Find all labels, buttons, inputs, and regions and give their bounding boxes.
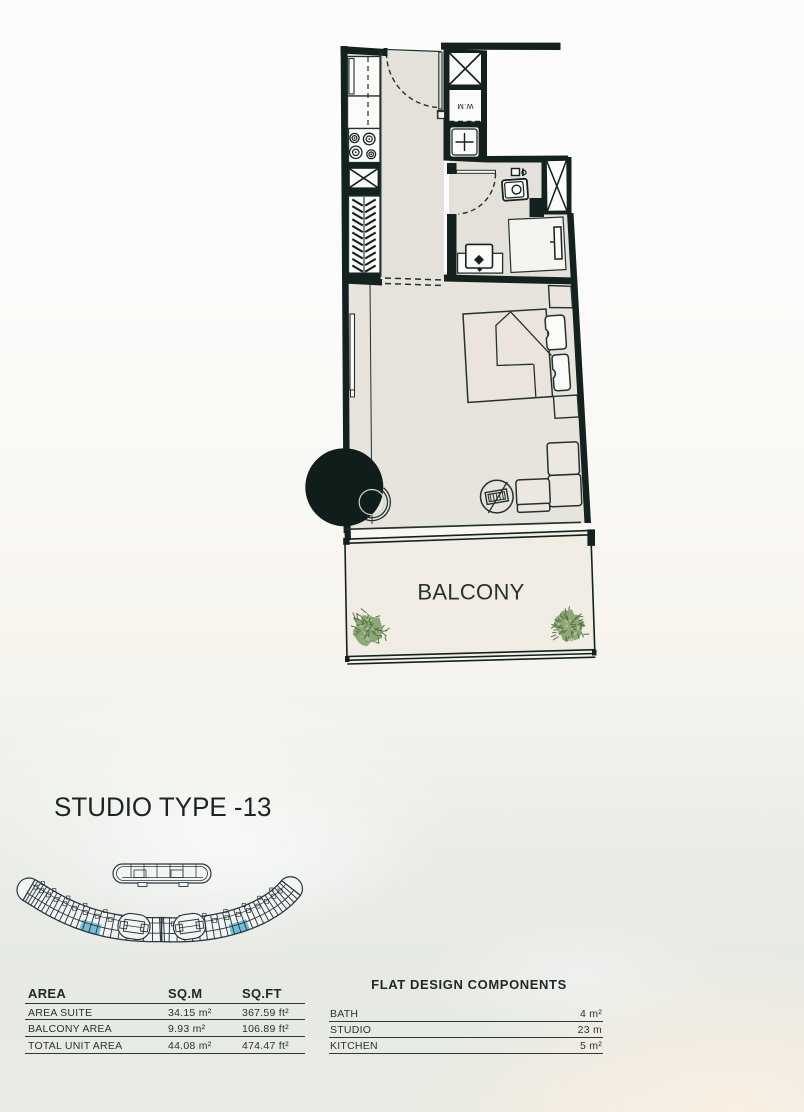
svg-text:W.M: W.M	[457, 102, 474, 111]
svg-text:BALCONY: BALCONY	[417, 580, 524, 605]
